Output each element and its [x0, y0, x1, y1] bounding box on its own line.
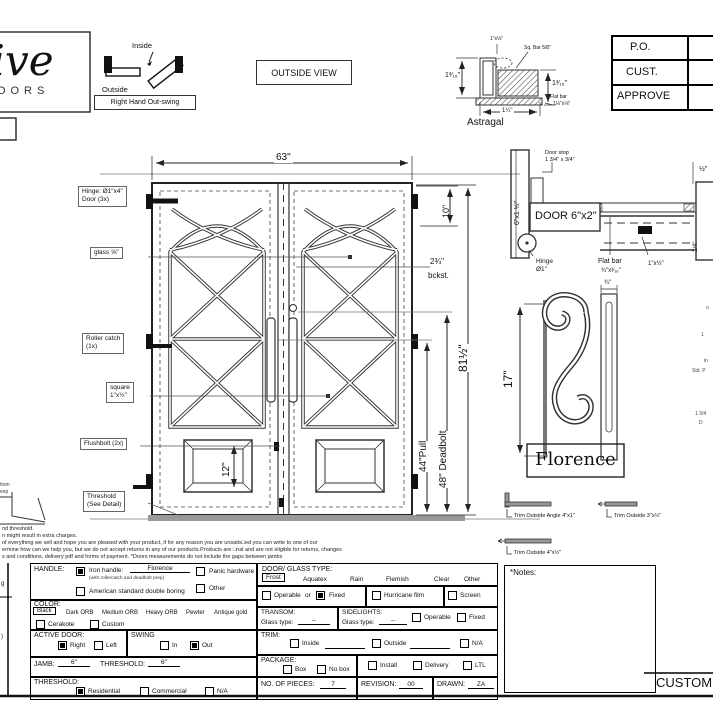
threshold-detail-cut	[0, 492, 45, 524]
trim-outside-checkbox[interactable]	[372, 639, 381, 648]
glass-option-other[interactable]: Other	[464, 576, 480, 583]
hurricane-label: Hurricane film	[384, 592, 424, 599]
frag-bottom: ttom	[0, 483, 10, 489]
active-right-checkbox[interactable]	[58, 641, 67, 650]
fixed-label: Fixed	[329, 592, 345, 599]
jamb-label: JAMB:	[34, 661, 55, 669]
american-boring-checkbox[interactable]	[76, 587, 85, 596]
nobox-label: No box	[329, 666, 350, 673]
swing-label: SWING	[131, 632, 155, 640]
astragal-flatbar-label: Flat bar	[550, 95, 567, 101]
sidelights-glass-value[interactable]: --	[379, 617, 407, 625]
dim-height: 81½"	[457, 344, 470, 372]
transom-label: TRANSOM:	[261, 609, 295, 616]
logo-script: sive	[0, 38, 54, 84]
swing-inside-label: Inside	[132, 42, 152, 50]
active-left-checkbox[interactable]	[94, 641, 103, 650]
astragal-flatbar-dim: 1⅛"x⅛"	[553, 102, 570, 108]
sidelights-fixed-label: Fixed	[469, 614, 485, 621]
install-label: Install	[380, 662, 397, 669]
astragal-bottom-dim: 1¼"	[500, 108, 514, 115]
fine-print: nd threshold. n might result in extra ch…	[2, 526, 342, 561]
commercial-label: Commercial	[152, 688, 187, 695]
dim-panel: 12"	[221, 462, 232, 477]
threshold-label: Threshold(See Detail)	[83, 491, 125, 512]
delivery-checkbox[interactable]	[413, 661, 422, 670]
color-option-darkorb[interactable]: Dark ORB	[66, 610, 93, 617]
trim-angle-label: Trim Outside Angle 4"x1"	[514, 513, 575, 519]
iron-handle-checkbox[interactable]	[76, 567, 85, 576]
trim-inside-value[interactable]	[325, 640, 365, 649]
glass-option-rain[interactable]: Rain	[350, 576, 363, 583]
handle-width-dim: ¾"	[604, 280, 611, 287]
glass-option-flemish[interactable]: Flemish	[386, 576, 409, 583]
swing-out-checkbox[interactable]	[190, 641, 199, 650]
swing-in-label: In	[172, 642, 177, 649]
iron-handle-value[interactable]: Florence	[130, 565, 190, 573]
logo-sub: DOORS	[0, 85, 49, 97]
drawn-label: DRAWN:	[437, 681, 465, 689]
handle-name: Florence	[527, 450, 624, 470]
trim-inside-label: Inside	[302, 640, 319, 647]
trim-outside-value[interactable]	[410, 640, 450, 649]
frag-stdprep: Std. P	[692, 369, 706, 375]
transom-glass-label: Glass type:	[261, 619, 294, 626]
trim-4-label: Trim Outside 4"x½"	[514, 550, 561, 556]
ltl-checkbox[interactable]	[463, 661, 472, 670]
frag-in: in	[704, 359, 708, 365]
titleblock-cust-value[interactable]	[689, 61, 713, 84]
threshold-na-label: N/A	[217, 688, 228, 695]
active-door-label: ACTIVE DOOR:	[34, 632, 84, 640]
residential-checkbox[interactable]	[76, 687, 85, 696]
or-label: or	[305, 592, 311, 599]
iron-handle-label: Iron handle:	[89, 567, 123, 574]
revision-value[interactable]: 00	[399, 681, 423, 689]
box-label: Box	[295, 666, 306, 673]
package-label: PACKAGE:	[261, 657, 296, 665]
square-label: square1"x½"	[106, 382, 134, 403]
fixed-checkbox[interactable]	[316, 591, 325, 600]
cerakote-label: Cerakote	[48, 621, 74, 628]
dim-width: 63"	[274, 152, 293, 163]
swing-out-label: Out	[202, 642, 212, 649]
roller-catch-label: Roller catch(1x)	[82, 333, 124, 354]
section-door-label: DOOR 6"x2"	[535, 210, 597, 222]
section-bar-dim: 1"x½"	[648, 261, 664, 268]
door-stop-label: Door stop	[545, 150, 569, 156]
trim-3-label: Trim Outside 3"x½"	[614, 513, 661, 519]
screen-label: Screen	[460, 592, 481, 599]
trim-row-label: TRIM:	[261, 632, 280, 640]
screen-checkbox[interactable]	[448, 591, 457, 600]
color-option-antiquegold[interactable]: Antique gold	[214, 610, 247, 617]
trim-na-label: N/A	[472, 640, 483, 647]
section-flatbar-label: Flat bar	[598, 258, 622, 266]
swing-outside-label: Outside	[102, 86, 128, 94]
operable-checkbox[interactable]	[262, 591, 271, 600]
flushbolt-label: Flushbolt (2x)	[80, 438, 127, 450]
hinge-label: Hinge: Ø1"x4"Door (3x)	[78, 186, 127, 207]
nobox-checkbox[interactable]	[317, 665, 326, 674]
frag-sweep: eep	[0, 490, 8, 496]
door-stop-dim: 1 3/4" x 3/4"	[545, 157, 575, 163]
dim-backset-sub: bckst.	[428, 272, 449, 281]
custom-label: Custom	[102, 621, 124, 628]
trim-inside-checkbox[interactable]	[290, 639, 299, 648]
section-flatbar-dim: ¾"x³⁄₁₆"	[601, 268, 621, 275]
jamb-value[interactable]: 6"	[58, 659, 90, 667]
section-half-dim: ½"	[699, 166, 707, 174]
frag-g: g	[1, 581, 4, 588]
trim-outside-label: Outside	[384, 640, 406, 647]
active-right-label: Right	[70, 642, 85, 649]
trim-na-checkbox[interactable]	[460, 639, 469, 648]
panic-checkbox[interactable]	[196, 567, 205, 576]
astragal-top-dim: 1"x⅛"	[490, 37, 503, 43]
outside-view-label: OUTSIDE VIEW	[256, 60, 352, 85]
sidelights-operable-checkbox[interactable]	[412, 613, 421, 622]
swing-hand-label: Right Hand Out-swing	[94, 95, 196, 110]
astragal-title: Astragal	[467, 117, 504, 128]
dim-top-hinge: 10"	[442, 205, 452, 218]
custom-checkbox[interactable]	[90, 620, 99, 629]
color-option-black[interactable]: Black	[33, 607, 56, 615]
drawing-sheet: sive DOORS Inside Outside Right Hand Out…	[0, 0, 713, 713]
swing-symbols	[104, 52, 183, 88]
american-boring-label: American standard double boring	[89, 588, 185, 595]
titleblock-cust: CUST.	[626, 66, 658, 78]
frag-o: o	[706, 306, 709, 312]
handle-other-checkbox[interactable]	[196, 584, 205, 593]
jamb-threshold-label: THRESHOLD:	[100, 661, 145, 669]
swing-in-checkbox[interactable]	[160, 641, 169, 650]
notes-box[interactable]	[504, 565, 656, 693]
section-jamb-dim: 6"x1 ½"	[514, 201, 522, 225]
sidelights-glass-label: Glass type:	[342, 619, 375, 626]
dim-deadbolt: 48" Deadbolt	[438, 431, 449, 488]
revision-label: REVISION:	[361, 681, 396, 689]
glass-option-frost[interactable]: Frost	[262, 573, 285, 582]
threshold-na-checkbox[interactable]	[205, 687, 214, 696]
box-checkbox[interactable]	[283, 665, 292, 674]
section-hinge-label: Hinge	[536, 258, 553, 265]
active-left-label: Left	[106, 642, 117, 649]
residential-label: Residential	[88, 688, 120, 695]
color-option-heavyorb[interactable]: Heavy ORB	[146, 610, 178, 617]
frag-paren: )	[1, 634, 3, 641]
astragal-sqbar-dim: Sq. Bar 5/8"	[524, 46, 551, 52]
titleblock-approve-value[interactable]	[689, 86, 713, 109]
handle-other-label: Other	[209, 585, 225, 592]
drawn-value[interactable]: ZA	[468, 681, 494, 689]
cerakote-checkbox[interactable]	[36, 620, 45, 629]
hurricane-checkbox[interactable]	[372, 591, 381, 600]
titleblock-po: P.O.	[630, 41, 651, 53]
astragal-right-dim: 1³⁄₁₆"	[552, 80, 567, 88]
pieces-value[interactable]: 7	[320, 681, 346, 689]
delivery-label: Delivery	[425, 662, 448, 669]
customer-label: CUSTOM	[656, 676, 712, 690]
commercial-checkbox[interactable]	[140, 687, 149, 696]
titleblock-approve: APPROVE	[617, 90, 670, 102]
astragal-drawing	[456, 44, 556, 116]
dim-pull: 44"Pull	[418, 441, 429, 472]
section-34-dim: 3/4"	[693, 242, 700, 252]
plan-section	[511, 150, 713, 260]
color-option-mediumorb[interactable]: Medium ORB	[102, 610, 138, 617]
glass-option-clear[interactable]: Clear	[434, 576, 450, 583]
jamb-threshold-value[interactable]: 6"	[148, 659, 180, 667]
threshold-type-label: THRESHOLD:	[34, 679, 79, 687]
titleblock-po-value[interactable]	[689, 37, 713, 59]
section-hinge-dim: Ø1"	[536, 266, 547, 273]
handle-height-dim: 17"	[502, 370, 515, 388]
sidelights-label: SIDELIGHTS:	[342, 609, 382, 616]
color-option-pewter[interactable]: Pewter	[186, 610, 205, 617]
pieces-label: NO. OF PIECES:	[261, 681, 315, 689]
dim-backset: 2¾"	[430, 258, 444, 267]
frag-134: 1 3/4	[695, 412, 706, 418]
install-checkbox[interactable]	[368, 661, 377, 670]
astragal-left-dim: 1³⁄₁₆"	[445, 72, 460, 80]
glass-option-aquatex[interactable]: Aquatex	[303, 576, 327, 583]
sidelights-fixed-checkbox[interactable]	[457, 613, 466, 622]
iron-handle-note: (with rollercatch and deadbolt prep)	[89, 576, 164, 581]
transom-glass-value[interactable]: --	[298, 617, 330, 625]
operable-label: Operable	[274, 592, 301, 599]
frag-d: D	[699, 421, 703, 427]
handle-label: HANDLE:	[34, 566, 64, 574]
notes-label: *Notes:	[510, 569, 536, 578]
frag-1: 1	[701, 333, 704, 339]
panic-label: Panic hardware	[209, 568, 254, 575]
trim-details	[498, 493, 637, 554]
ltl-label: LTL	[475, 662, 486, 669]
glass-label: glass ⅝"	[90, 247, 123, 259]
sidelights-operable-label: Operable	[424, 614, 451, 621]
